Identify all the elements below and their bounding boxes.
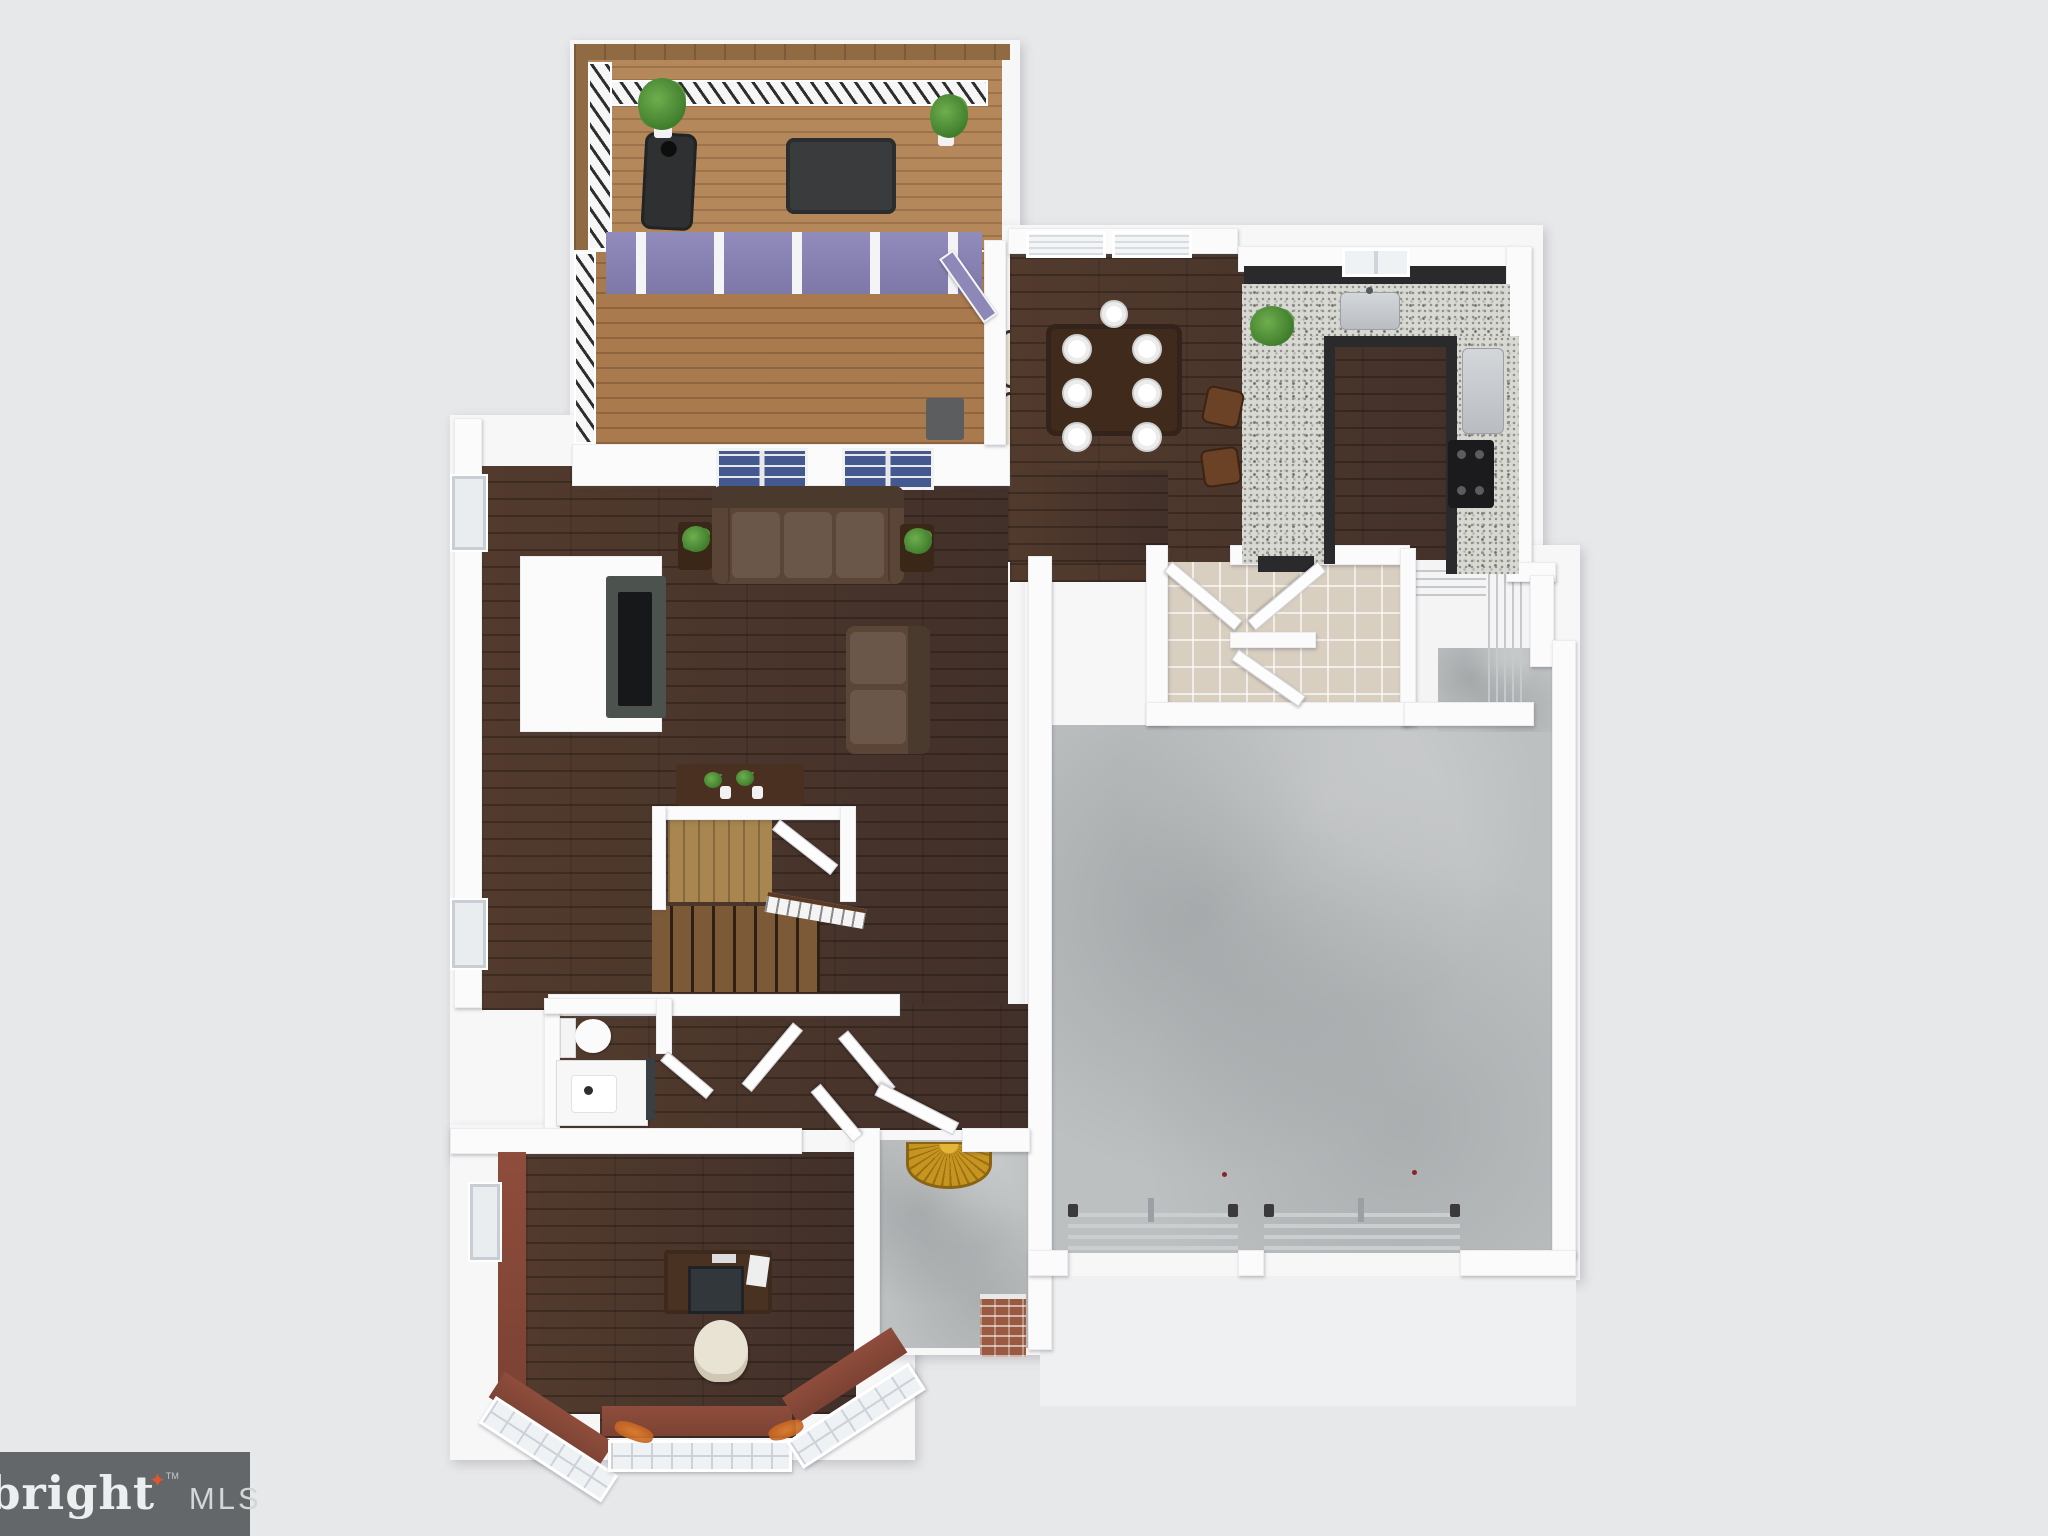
office-maroon-wall-left <box>498 1152 526 1392</box>
garage-left-wall <box>1028 556 1052 1350</box>
office-bay-window-center <box>608 1440 792 1472</box>
side-table-plant-right <box>904 528 932 554</box>
living-left-window-1 <box>450 474 488 552</box>
brightmls-trademark: TM <box>166 1471 179 1481</box>
stairs-right-wall <box>840 806 856 902</box>
garage-bottom-wall-center <box>1238 1250 1264 1276</box>
sunroom-glass-wall <box>606 232 982 294</box>
deck-railing-left <box>588 62 612 250</box>
dinner-plate <box>1062 378 1092 408</box>
dining-window-2 <box>1112 231 1192 258</box>
garage-floor <box>1052 725 1552 1253</box>
deck-border-top <box>574 44 1010 60</box>
garage-top-wall <box>1146 702 1408 726</box>
sunroom-window-2 <box>842 448 934 490</box>
brightmls-watermark: bright✦TMMLS <box>0 1452 250 1536</box>
console-table <box>676 764 804 806</box>
desk-papers <box>746 1255 770 1287</box>
garage-bottom-wall-left <box>1028 1250 1068 1276</box>
floor-plan-render: bright✦TMMLS <box>0 0 2048 1536</box>
toilet-bowl <box>575 1019 611 1053</box>
kitchen-faucet <box>1366 287 1373 294</box>
deck-plant-right <box>930 94 968 138</box>
dinner-plate <box>1100 300 1128 328</box>
deck-plant-corner <box>638 78 686 130</box>
staircase-treads <box>652 906 820 992</box>
sunroom-exit-mat <box>926 398 964 440</box>
tv-screen <box>618 592 652 706</box>
brightmls-mls-text: MLS <box>189 1481 262 1517</box>
brightmls-star-icon: ✦ <box>149 1468 166 1493</box>
office-right-wall <box>854 1128 880 1362</box>
kitchen-sink-window <box>1342 248 1410 277</box>
dinner-plate <box>1062 422 1092 452</box>
dinner-plate <box>1132 422 1162 452</box>
living-left-window-2 <box>450 898 488 970</box>
pantry-wire-shelves-right <box>1488 570 1528 712</box>
refrigerator <box>1462 348 1504 434</box>
sectional-sofa <box>712 486 904 584</box>
kitchen-sink <box>1340 292 1400 330</box>
kitchen-plant <box>1250 306 1294 346</box>
desk-keyboard <box>712 1254 736 1263</box>
stair-closet-top-wall <box>652 806 854 820</box>
loveseat <box>846 626 930 754</box>
sunroom-railing-left <box>574 252 596 444</box>
garage-right-wall-upper <box>1530 575 1554 667</box>
pantry-bottom-wall <box>1404 702 1534 726</box>
deck-table <box>786 138 896 214</box>
garage-opener-light-1 <box>1222 1172 1227 1177</box>
bar-stool-1 <box>1200 384 1245 429</box>
dinner-plate <box>1132 334 1162 364</box>
kitchen-peninsula <box>1242 336 1335 564</box>
mudroom-mid-stub-wall <box>1230 632 1316 648</box>
sunroom-window-1 <box>716 448 808 490</box>
dinner-plate <box>1132 378 1162 408</box>
bathroom-vanity <box>556 1060 648 1126</box>
toilet-tank <box>560 1018 576 1058</box>
sunroom-right-wall <box>984 240 1006 445</box>
side-table-plant-left <box>682 526 710 552</box>
stair-closet-interior <box>668 818 772 902</box>
office-top-wall <box>450 1128 802 1154</box>
porch-top-wall-right <box>962 1128 1030 1152</box>
office-left-window <box>468 1182 502 1262</box>
bar-stool-2 <box>1200 446 1243 489</box>
powder-right-wall <box>656 998 672 1054</box>
desk-monitor <box>688 1266 744 1314</box>
vanity-mirror <box>646 1058 655 1120</box>
dinner-plate <box>1062 334 1092 364</box>
corridor-floor <box>1008 470 1168 562</box>
kitchen-island-base <box>1258 556 1314 572</box>
garage-door-track-1 <box>1068 1208 1238 1250</box>
office-chair <box>694 1320 748 1382</box>
brightmls-brand-text: bright <box>0 1466 155 1520</box>
kitchen-range <box>1448 440 1494 508</box>
deck-border-left <box>574 44 588 250</box>
driveway-apron <box>1040 1276 1576 1406</box>
powder-top-wall <box>544 998 670 1014</box>
vanity-faucet <box>584 1086 593 1095</box>
pantry-divider-wall <box>1400 548 1416 726</box>
bbq-grill <box>640 132 697 232</box>
garage-door-track-2 <box>1264 1208 1460 1250</box>
porch-brick-column <box>980 1294 1026 1357</box>
garage-bottom-wall-right <box>1460 1250 1576 1276</box>
dining-window-1 <box>1026 231 1106 258</box>
stair-closet-left-wall <box>652 806 666 910</box>
garage-right-wall <box>1552 640 1576 1258</box>
garage-opener-light-2 <box>1412 1170 1417 1175</box>
